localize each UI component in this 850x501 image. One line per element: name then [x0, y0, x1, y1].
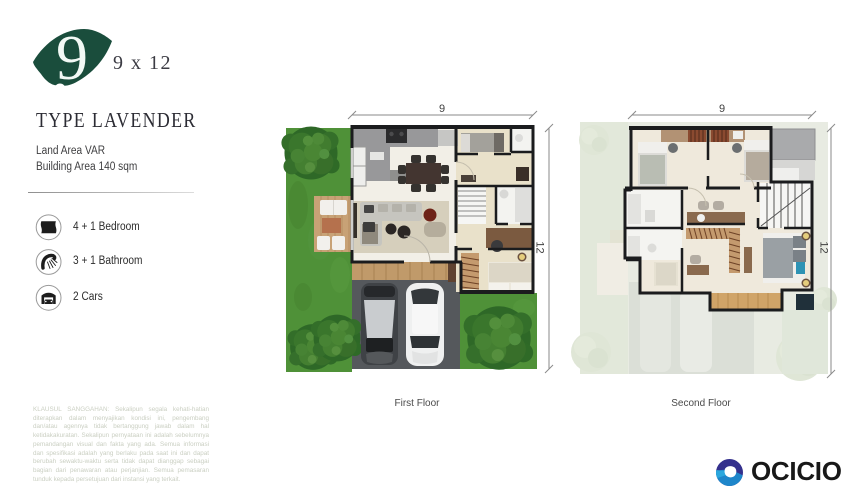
svg-text:9: 9 [719, 103, 725, 115]
svg-text:9: 9 [439, 103, 445, 115]
svg-text:12: 12 [818, 241, 830, 253]
svg-text:12: 12 [534, 241, 546, 253]
